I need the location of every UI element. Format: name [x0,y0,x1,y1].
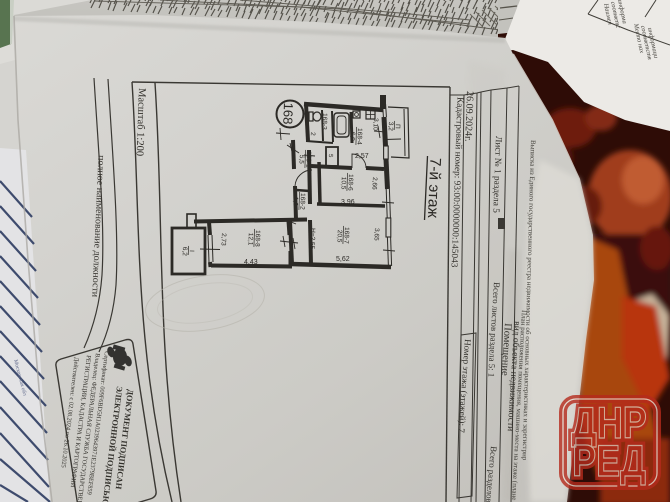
svg-text:4,43: 4,43 [244,259,258,266]
svg-text:2,66: 2,66 [371,177,378,190]
svg-text:Н=2,55: Н=2,55 [308,228,316,250]
svg-text:3,2: 3,2 [387,122,394,132]
svg-text:5,5: 5,5 [298,155,305,165]
svg-text:3,10: 3,10 [372,118,379,131]
svg-text:168: 168 [280,102,296,124]
svg-text:2,57: 2,57 [355,153,369,160]
svg-text:20,5: 20,5 [335,230,342,243]
svg-text:3,65: 3,65 [373,228,380,241]
svg-text:РЕД: РЕД [572,435,646,486]
svg-text:5,62: 5,62 [336,256,350,263]
svg-text:10,5: 10,5 [339,177,346,190]
svg-text:1,6: 1,6 [292,197,299,207]
svg-text:2: 2 [309,132,316,136]
svg-text:168-3: 168-3 [320,113,328,130]
svg-text:12,1: 12,1 [246,233,253,246]
svg-text:2,73: 2,73 [220,233,227,246]
svg-text:6,2: 6,2 [181,247,188,257]
svg-text:6,9: 6,9 [349,132,356,142]
svg-text:3,96: 3,96 [341,199,355,206]
